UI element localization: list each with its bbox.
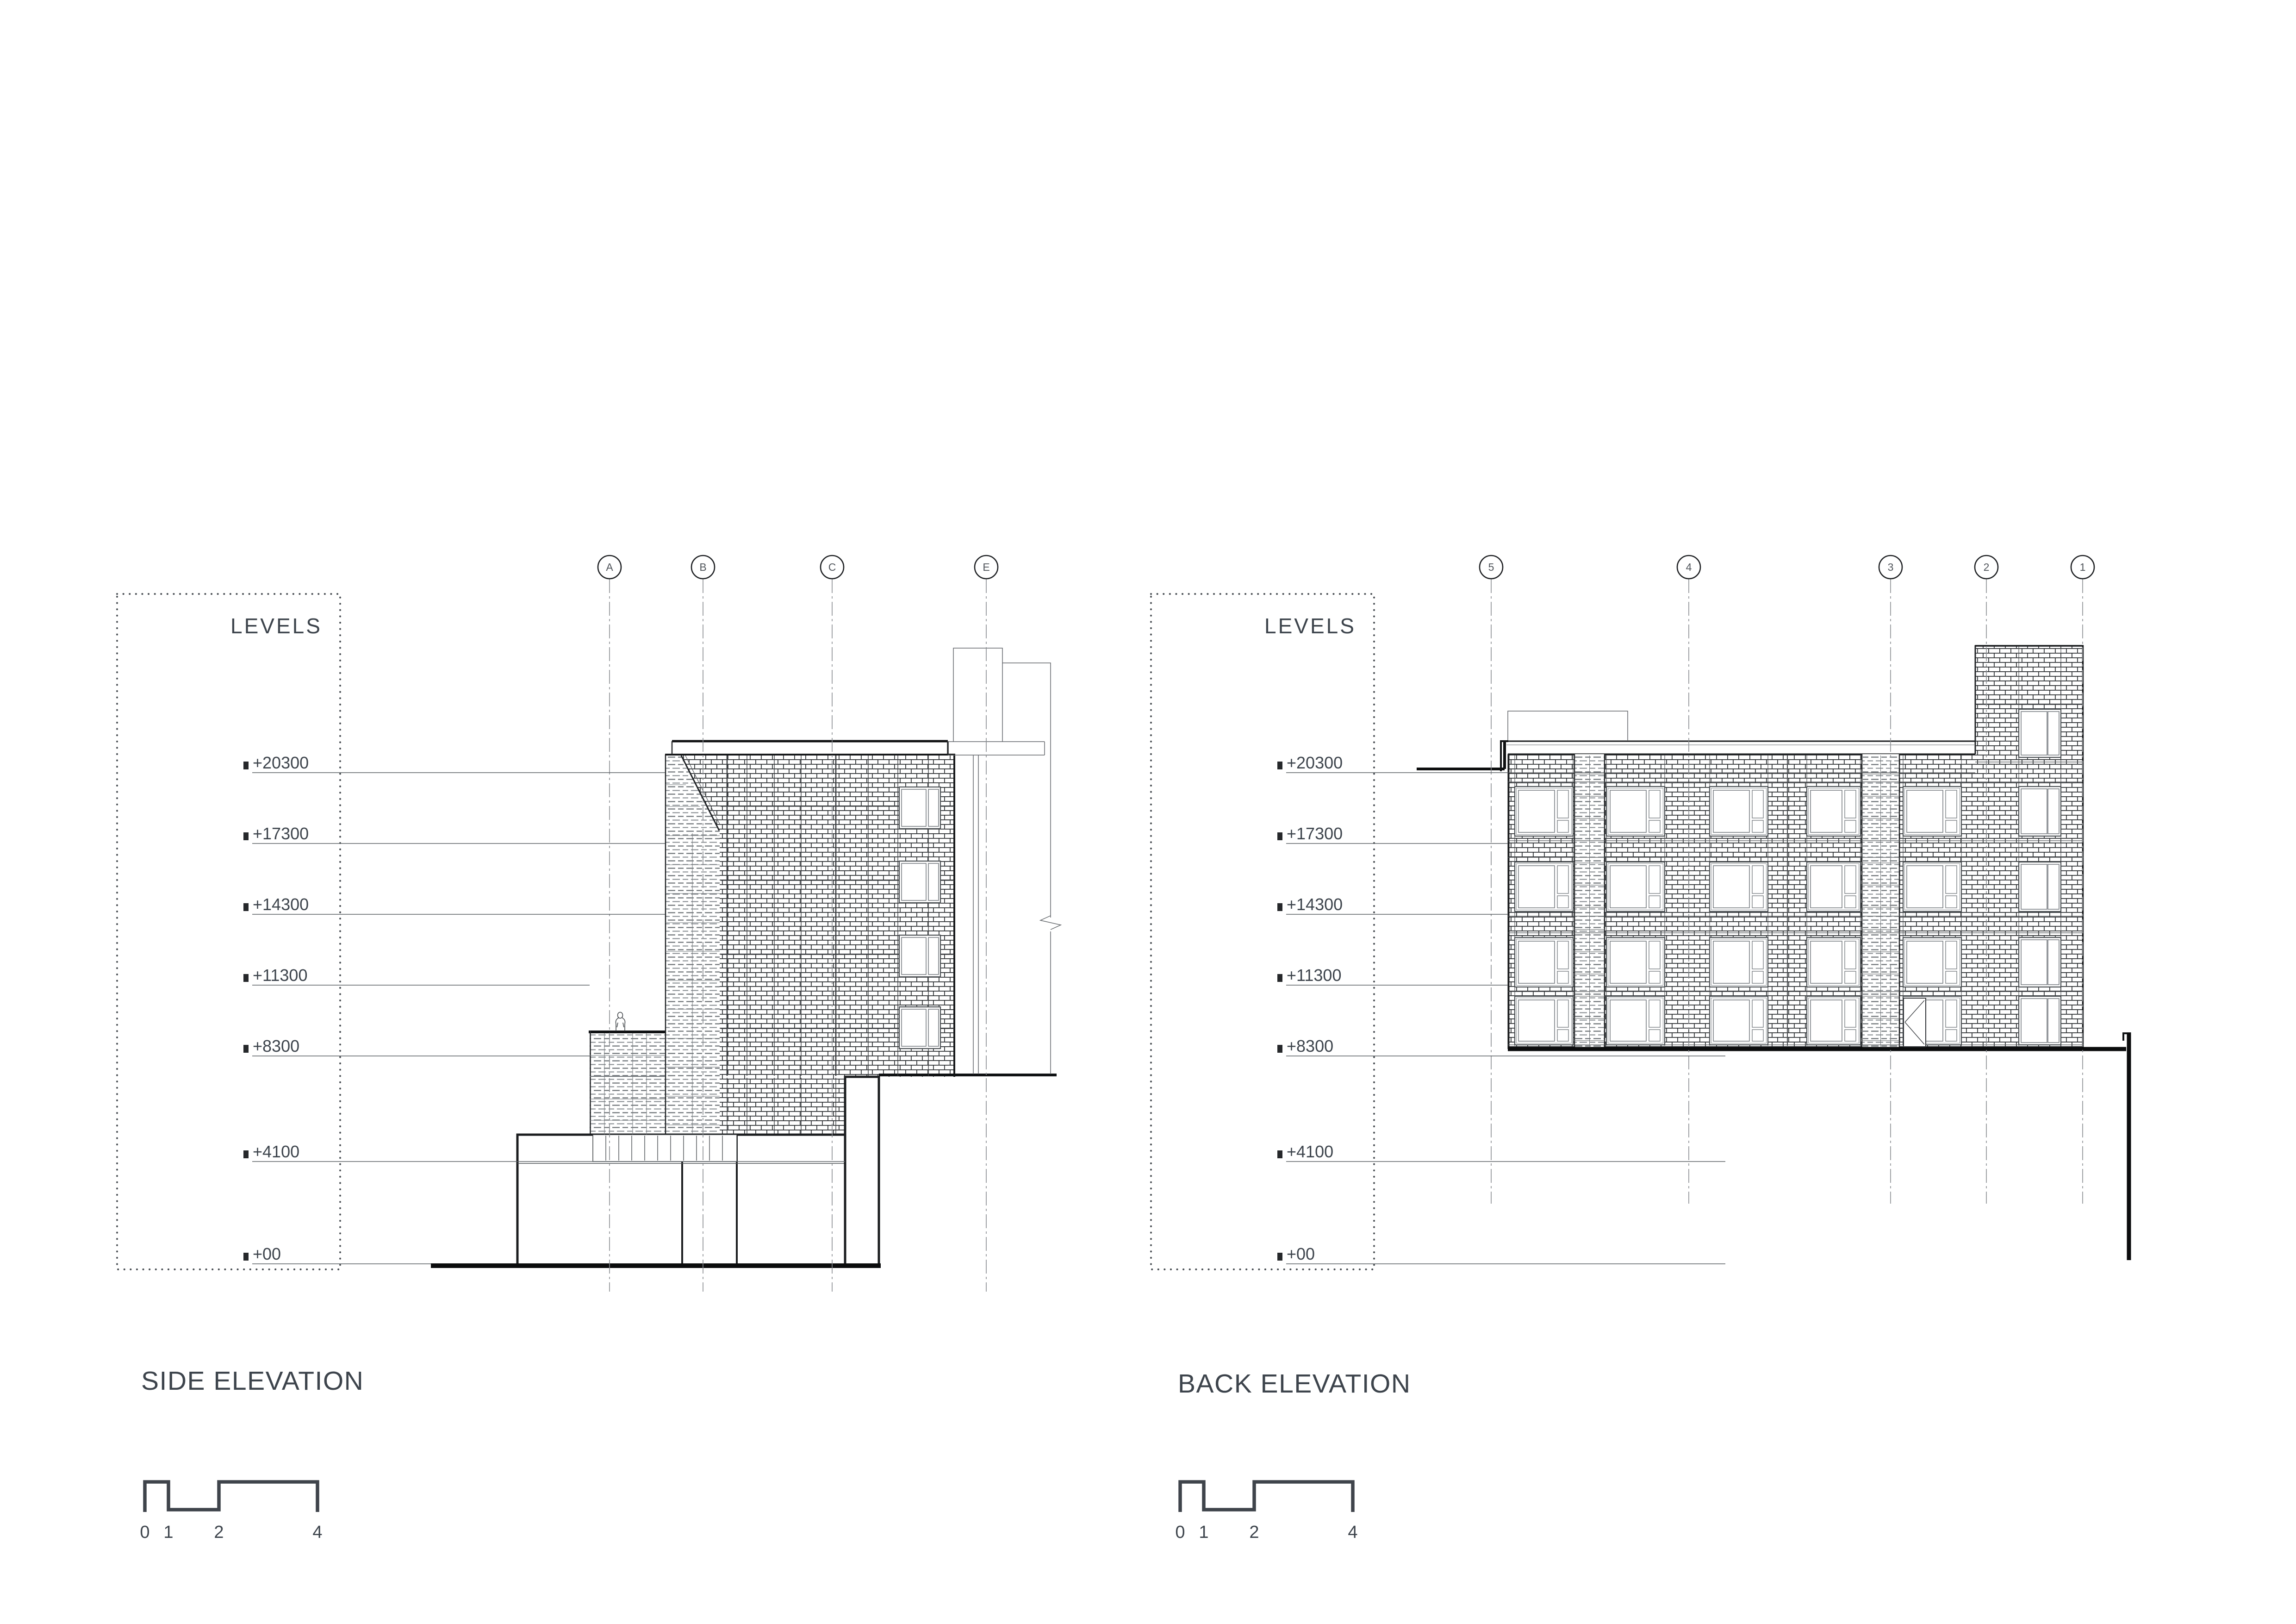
- window: [1710, 996, 1768, 1045]
- window-pane: [1845, 941, 1856, 969]
- grid-bubble-label: A: [606, 561, 613, 573]
- level-row: +00: [243, 1244, 431, 1264]
- window: [1710, 937, 1768, 987]
- scale-label: 2: [1249, 1523, 1259, 1542]
- window: [2019, 996, 2061, 1045]
- levels-panel-title: LEVELS: [230, 614, 322, 638]
- annex-plaster-wall: [590, 1031, 665, 1135]
- level-label: +4100: [1287, 1142, 1333, 1161]
- window-pane: [1518, 790, 1555, 832]
- window-pane: [928, 789, 939, 826]
- window-spandrel-pane: [1946, 971, 1957, 983]
- window-pane: [1649, 790, 1660, 818]
- grid-bubble: C: [821, 556, 844, 579]
- level-label: +20300: [1287, 753, 1343, 772]
- window: [1807, 937, 1860, 987]
- window-pane: [1518, 866, 1555, 908]
- level-marker: [243, 762, 249, 769]
- clerestory-band: [593, 1135, 737, 1162]
- window-pane: [1946, 1000, 1957, 1027]
- window-pane: [1845, 790, 1856, 818]
- window-spandrel-pane: [1752, 820, 1763, 832]
- window-pane: [1649, 1000, 1660, 1027]
- window-pane: [1752, 866, 1763, 893]
- window-pane: [1610, 866, 1646, 908]
- scale-bar: [1180, 1482, 1353, 1512]
- level-label: +17300: [1287, 824, 1343, 843]
- window-pane: [2048, 940, 2059, 985]
- window: [2019, 937, 2061, 987]
- window-pane: [1752, 941, 1763, 969]
- level-label: +17300: [253, 824, 309, 843]
- level-label: +00: [253, 1244, 281, 1263]
- level-marker: [243, 1150, 249, 1158]
- window-spandrel-pane: [1649, 820, 1660, 832]
- window-pane: [1845, 1000, 1856, 1027]
- level-label: +8300: [1287, 1037, 1333, 1056]
- window: [1903, 787, 1961, 836]
- level-marker: [1277, 903, 1282, 911]
- level-label: +20300: [253, 753, 309, 772]
- scale-label: 1: [1199, 1523, 1208, 1542]
- door: [1904, 998, 1926, 1047]
- grid-bubble: A: [598, 556, 621, 579]
- level-label: +00: [1287, 1244, 1315, 1263]
- grid-bubble: 4: [1677, 556, 1700, 579]
- window-pane: [902, 863, 926, 900]
- window-pane: [1907, 941, 1943, 983]
- level-label: +4100: [253, 1142, 299, 1161]
- window-pane: [2048, 712, 2059, 755]
- level-row: +4100: [1277, 1142, 1725, 1162]
- window-pane: [1811, 941, 1842, 983]
- side-elevation-drawing: [431, 648, 1061, 1266]
- window: [1606, 862, 1665, 912]
- window: [1606, 787, 1665, 836]
- window-pane: [1713, 790, 1749, 832]
- break-line-icon: [1040, 916, 1061, 930]
- level-label: +11300: [253, 966, 307, 985]
- window: [1710, 787, 1768, 836]
- window-pane: [1649, 866, 1660, 893]
- window-pane: [2021, 864, 2047, 909]
- window-pane: [1557, 1000, 1568, 1027]
- window: [1807, 996, 1860, 1045]
- level-row: +17300: [1277, 824, 1508, 843]
- grid-bubble: 3: [1879, 556, 1902, 579]
- level-marker: [1277, 832, 1282, 840]
- levels-box: [117, 594, 340, 1269]
- grid-bubble-label: 2: [1984, 561, 1990, 573]
- window-pane: [1557, 790, 1568, 818]
- level-row: +11300: [1277, 966, 1508, 985]
- window: [1515, 862, 1573, 912]
- window-pane: [2048, 864, 2059, 909]
- adjacent-structure-outline: [948, 648, 1051, 1074]
- window-spandrel-pane: [1752, 971, 1763, 983]
- grid-bubble-label: 4: [1686, 561, 1692, 573]
- grid-bubble-label: B: [699, 561, 706, 573]
- window-pane: [1752, 790, 1763, 818]
- window-pane: [1610, 1000, 1646, 1041]
- window: [1606, 996, 1665, 1045]
- grid-bubble: B: [691, 556, 715, 579]
- window: [1807, 862, 1860, 912]
- level-marker: [243, 1253, 249, 1261]
- window-pane: [1811, 1000, 1842, 1041]
- window-pane: [1752, 1000, 1763, 1027]
- window-pane: [928, 1009, 939, 1046]
- window: [1515, 937, 1573, 987]
- window: [1606, 937, 1665, 987]
- side-elevation-title: SIDE ELEVATION: [141, 1366, 364, 1396]
- window-spandrel-pane: [1845, 1030, 1856, 1041]
- human-figure-icon: [616, 1012, 625, 1031]
- window-spandrel-pane: [1845, 971, 1856, 983]
- window-spandrel-pane: [1557, 896, 1568, 908]
- window-spandrel-pane: [1649, 896, 1660, 908]
- window-pane: [2021, 999, 2047, 1043]
- window: [899, 1007, 940, 1049]
- level-marker: [1277, 1253, 1282, 1261]
- level-label: +14300: [1287, 895, 1343, 914]
- window-pane: [1907, 866, 1943, 908]
- window-spandrel-pane: [1752, 896, 1763, 908]
- level-row: +14300: [1277, 895, 1508, 914]
- window: [1710, 862, 1768, 912]
- grid-bubble-label: 1: [2080, 561, 2086, 573]
- grid-bubble: E: [975, 556, 998, 579]
- level-label: +8300: [253, 1037, 299, 1056]
- scale-label: 1: [163, 1523, 173, 1542]
- window-pane: [2021, 940, 2047, 985]
- grid-bubble: 1: [2071, 556, 2094, 579]
- window-spandrel-pane: [1649, 971, 1660, 983]
- grid-bubble: 5: [1480, 556, 1503, 579]
- window-pane: [1518, 941, 1555, 983]
- window-pane: [2021, 789, 2047, 834]
- window: [2019, 709, 2061, 757]
- level-row: +8300: [243, 1037, 590, 1056]
- scale-label: 4: [1348, 1523, 1357, 1542]
- scale-bar: [145, 1482, 317, 1512]
- window-pane: [1946, 866, 1957, 893]
- grid-bubble-label: E: [983, 561, 989, 573]
- grid-bubble-label: 3: [1888, 561, 1894, 573]
- window-pane: [1845, 866, 1856, 893]
- levels-box: [1151, 594, 1374, 1269]
- scale-label: 2: [214, 1523, 224, 1542]
- corner-tower-brick: [1975, 645, 2084, 1049]
- window-spandrel-pane: [1752, 1030, 1763, 1041]
- window: [1807, 787, 1860, 836]
- level-marker: [243, 1045, 249, 1053]
- recessed-bay: [845, 1077, 879, 1265]
- level-label: +14300: [253, 895, 309, 914]
- window-spandrel-pane: [1557, 971, 1568, 983]
- level-row: +14300: [243, 895, 665, 914]
- window: [2019, 862, 2061, 912]
- window-pane: [902, 789, 926, 826]
- levels-panel-title: LEVELS: [1264, 614, 1356, 638]
- window: [899, 787, 940, 829]
- scale-bars-layer: 01240124: [140, 1482, 1357, 1542]
- window-pane: [902, 937, 926, 974]
- window-pane: [2048, 999, 2059, 1043]
- window: [1903, 862, 1961, 912]
- window: [899, 935, 940, 977]
- window: [2019, 787, 2061, 836]
- grid-bubble-label: 5: [1488, 561, 1494, 573]
- window-pane: [1713, 1000, 1749, 1041]
- window: [1515, 996, 1573, 1045]
- window-pane: [1557, 941, 1568, 969]
- window-spandrel-pane: [1845, 820, 1856, 832]
- window-spandrel-pane: [1649, 1030, 1660, 1041]
- grid-bubble-label: C: [828, 561, 836, 573]
- window-pane: [1811, 866, 1842, 908]
- window-pane: [2048, 789, 2059, 834]
- level-row: +00: [1277, 1244, 1725, 1264]
- window-pane: [1557, 866, 1568, 893]
- window-pane: [1610, 941, 1646, 983]
- window-pane: [1610, 790, 1646, 832]
- level-row: +11300: [243, 966, 590, 985]
- window-pane: [928, 863, 939, 900]
- window-pane: [1649, 941, 1660, 969]
- window: [1903, 937, 1961, 987]
- level-marker: [243, 832, 249, 840]
- window-pane: [1713, 941, 1749, 983]
- back-elevation-title: BACK ELEVATION: [1178, 1368, 1411, 1399]
- level-row: +20300: [243, 753, 665, 773]
- level-marker: [1277, 1045, 1282, 1053]
- window-pane: [1907, 790, 1943, 832]
- scale-label: 4: [312, 1523, 322, 1542]
- window-pane: [1811, 790, 1842, 832]
- level-label: +11300: [1287, 966, 1341, 985]
- scale-label: 0: [1175, 1523, 1185, 1542]
- window-pane: [1946, 941, 1957, 969]
- level-marker: [1277, 1150, 1282, 1158]
- window-pane: [1713, 866, 1749, 908]
- window: [1515, 787, 1573, 836]
- level-row: +17300: [243, 824, 665, 843]
- window-pane: [928, 937, 939, 974]
- penthouse-outline: [1508, 711, 1628, 740]
- window-pane: [2021, 712, 2047, 755]
- window-spandrel-pane: [1946, 896, 1957, 908]
- window-pane: [902, 1009, 926, 1046]
- grid-bubble: 2: [1975, 556, 1998, 579]
- window-spandrel-pane: [1845, 896, 1856, 908]
- window-spandrel-pane: [1557, 820, 1568, 832]
- level-marker: [1277, 762, 1282, 769]
- window-spandrel-pane: [1557, 1030, 1568, 1041]
- level-marker: [243, 903, 249, 911]
- scale-label: 0: [140, 1523, 149, 1542]
- window-pane: [1518, 1000, 1555, 1041]
- window-spandrel-pane: [1946, 820, 1957, 832]
- tower-brick-facade-lower: [720, 1077, 845, 1135]
- level-marker: [1277, 974, 1282, 982]
- window: [899, 861, 940, 903]
- window-spandrel-pane: [1946, 1030, 1957, 1041]
- window-pane: [1946, 790, 1957, 818]
- level-marker: [243, 974, 249, 982]
